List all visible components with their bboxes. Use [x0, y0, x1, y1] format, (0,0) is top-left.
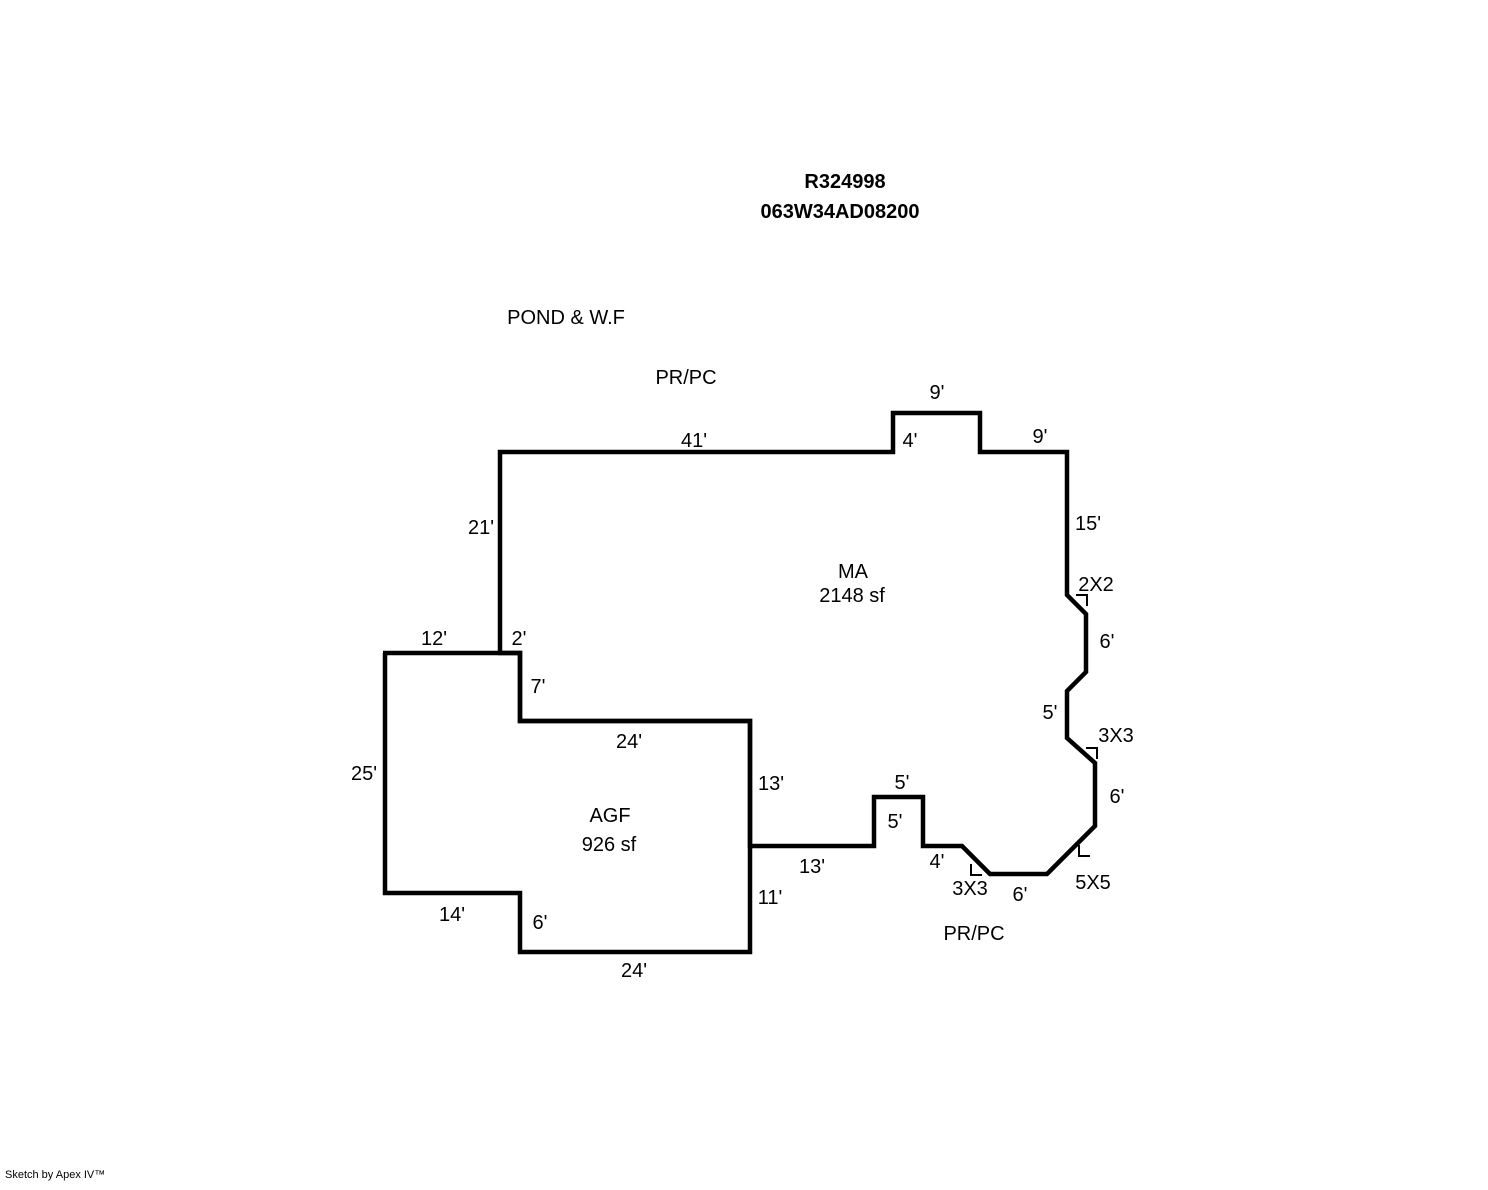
dimension-label: 25': [351, 764, 377, 784]
dimension-label: 9': [930, 383, 945, 403]
site-annotation: PR/PC: [943, 924, 1004, 944]
dimension-label: 2X2: [1078, 575, 1114, 595]
dimension-label: 12': [421, 629, 447, 649]
dimension-label: 3X3: [952, 879, 988, 899]
dimension-label: 4': [930, 852, 945, 872]
dimension-label: 5': [1043, 703, 1058, 723]
dimension-label: 6': [1100, 632, 1115, 652]
dimension-label: 7': [531, 677, 546, 697]
area-sqft-label: 926 sf: [582, 835, 636, 855]
parcel-id: R324998: [804, 172, 885, 192]
dimension-label: 24': [616, 732, 642, 752]
map-taxlot-id: 063W34AD08200: [761, 202, 920, 222]
apex-sketch-page: R324998 063W34AD08200 9'41'4'9'15'2X26'2…: [0, 0, 1488, 1190]
dimension-label: 14': [439, 905, 465, 925]
sketch-credit: Sketch by Apex IV™: [5, 1170, 105, 1181]
dimension-label: 5': [895, 773, 910, 793]
dimension-label: 13': [758, 774, 784, 794]
dimension-label: 13': [799, 857, 825, 877]
dimension-label: 21': [468, 518, 494, 538]
dimension-label: 3X3: [1098, 726, 1134, 746]
dimension-label: 11': [758, 888, 783, 908]
dimension-label: 41': [681, 431, 707, 451]
dimension-label: 15': [1075, 514, 1101, 534]
site-annotation: POND & W.F: [507, 308, 625, 328]
area-name-label: AGF: [589, 806, 630, 826]
dimension-label: 6': [1110, 787, 1125, 807]
dimension-label: 6': [1013, 885, 1028, 905]
dimension-label: 2': [512, 629, 527, 649]
dimension-label: 9': [1033, 427, 1048, 447]
dimension-label: 5X5: [1075, 873, 1111, 893]
area-name-label: MA: [838, 562, 868, 582]
site-annotation: PR/PC: [655, 368, 716, 388]
dimension-label: 6': [533, 913, 548, 933]
sketch-canvas: [0, 0, 1488, 1190]
dimension-label: 24': [621, 961, 647, 981]
area-sqft-label: 2148 sf: [819, 586, 885, 606]
dimension-label: 5': [888, 812, 903, 832]
dimension-label: 4': [903, 431, 918, 451]
5x5-angle-mark: [1079, 845, 1090, 856]
